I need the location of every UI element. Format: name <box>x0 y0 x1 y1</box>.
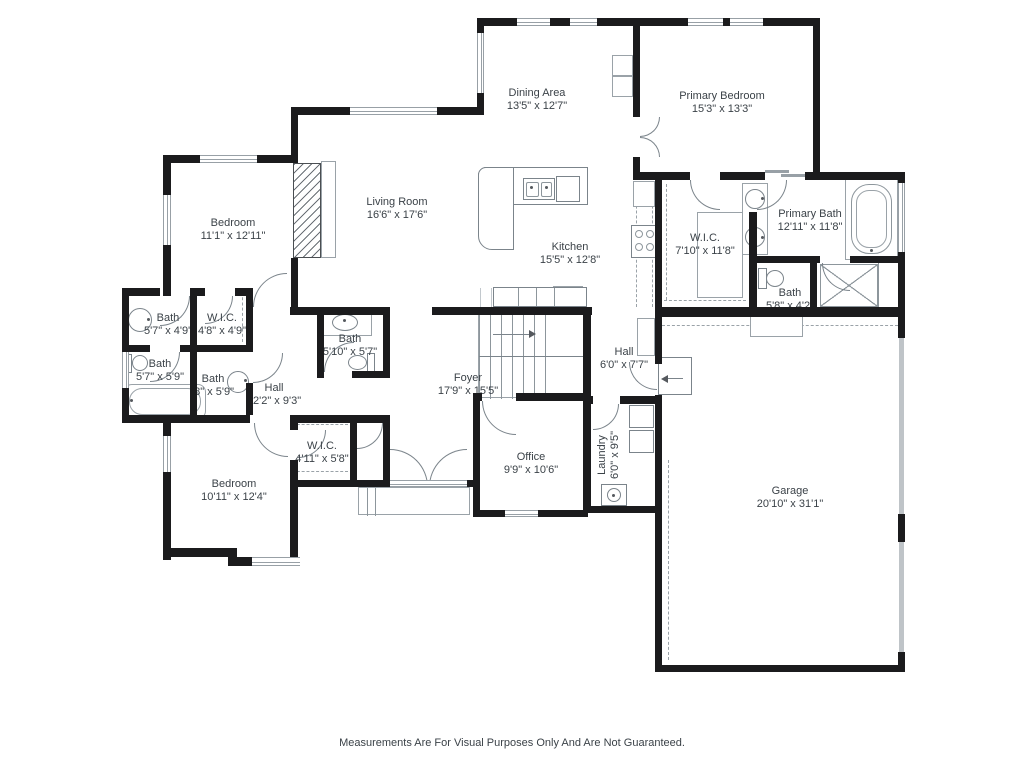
kitchen-island <box>478 167 514 250</box>
stair-direction-arrow <box>529 330 536 338</box>
room-name: Kitchen <box>540 241 600 254</box>
wall-segment <box>291 107 298 163</box>
room-label-garage: Garage 20'10" x 31'1" <box>757 485 823 511</box>
room-name: Laundry <box>596 431 609 479</box>
room-name: W.I.C. <box>198 312 246 325</box>
faucet-dot <box>612 494 615 497</box>
room-label-laundry: Laundry 6'0" x 9'5" <box>596 431 622 479</box>
wall-segment <box>633 157 640 180</box>
garage-door-panel <box>899 542 904 652</box>
room-dims: 4'8" x 4'9" <box>198 325 246 338</box>
faucet-dot <box>343 319 346 322</box>
faucet-dot <box>761 236 764 239</box>
room-name: Office <box>504 451 558 464</box>
closet-shelf <box>664 300 746 301</box>
door-swing-arc <box>757 180 787 210</box>
wall-segment <box>749 212 757 317</box>
room-label-hall-2: Hall 6'0" x 7'7" <box>600 346 648 372</box>
porch <box>358 487 470 515</box>
counter-divider <box>554 288 555 306</box>
cooktop <box>556 176 580 202</box>
room-name: Hall <box>600 346 648 359</box>
garage-step <box>658 357 692 395</box>
room-name: Primary Bath <box>778 208 843 221</box>
room-dims: 16'6" x 17'6" <box>366 209 427 222</box>
room-label-living-room: Living Room 16'6" x 17'6" <box>366 196 427 222</box>
room-label-bedroom-upper: Bedroom 11'1" x 12'11" <box>201 217 266 243</box>
door-swing-arc <box>690 180 720 210</box>
room-name: Bedroom <box>201 478 267 491</box>
wall-segment <box>290 415 298 430</box>
window <box>350 107 437 115</box>
room-label-wic-1: W.I.C. 4'8" x 4'9" <box>198 312 246 338</box>
wall-segment <box>317 307 324 378</box>
wall-segment <box>850 256 905 263</box>
wall-segment <box>290 307 390 315</box>
sink-basin <box>526 182 539 197</box>
room-dims: 13'5" x 12'7" <box>507 100 567 113</box>
wall-segment <box>655 179 662 307</box>
wall-segment <box>655 307 905 317</box>
door-swing-arc <box>254 423 288 457</box>
room-label-bath-3: Bath '8" x 5'9" <box>192 373 234 399</box>
kitchen-sink <box>523 178 555 200</box>
door-swing-arc <box>253 273 287 307</box>
faucet-dot <box>761 197 764 200</box>
wall-segment <box>583 310 591 513</box>
wall-segment <box>383 307 390 378</box>
wall-segment <box>246 288 253 345</box>
window <box>570 18 597 26</box>
door-swing-arc <box>640 117 660 137</box>
fireplace <box>293 163 321 258</box>
room-dims: 5'10" x 5'7" <box>323 346 377 359</box>
door-swing-arc <box>640 137 660 157</box>
linen-divider <box>878 263 879 307</box>
room-dims: 7'10" x 11'8" <box>675 245 735 258</box>
faucet-dot <box>530 186 533 189</box>
wall-segment <box>749 256 820 263</box>
wall-segment <box>655 395 662 672</box>
room-dims: 12'2" x 9'3" <box>247 395 301 408</box>
wall-segment <box>898 317 905 338</box>
tub-faucet <box>130 399 133 402</box>
room-dims: 4'11" x 5'8" <box>295 453 348 466</box>
wall-segment <box>813 18 820 180</box>
room-label-wic-2: W.I.C. 4'11" x 5'8" <box>295 440 348 466</box>
wall-segment <box>291 258 298 315</box>
wall-segment <box>246 383 253 415</box>
wall-segment <box>122 415 250 423</box>
window <box>122 352 129 388</box>
sink-basin <box>541 182 552 197</box>
room-dims: '8" x 5'9" <box>192 386 234 399</box>
burner <box>646 243 654 251</box>
vanity-sink <box>332 314 358 331</box>
room-name: Bath <box>192 373 234 386</box>
room-label-bath-1: Bath 5'7" x 4'9" <box>144 312 192 338</box>
room-name: Bath <box>136 358 184 371</box>
porch-step-line <box>375 488 376 516</box>
room-dims: 10'11" x 12'4" <box>201 491 267 504</box>
wall-segment <box>290 415 390 423</box>
wall-segment <box>898 652 905 672</box>
wall-segment <box>655 665 905 672</box>
room-label-bath-2: Bath 5'7" x 5'9" <box>136 358 184 384</box>
room-name: Foyer <box>438 372 498 385</box>
window <box>505 510 538 517</box>
wall-segment <box>633 18 640 117</box>
wall-segment <box>655 317 662 364</box>
room-name: Bath <box>144 312 192 325</box>
garage-door-panel <box>899 338 904 514</box>
room-dims: 9'9" x 10'6" <box>504 464 558 477</box>
dining-builtin <box>612 55 633 76</box>
porch-step-line <box>367 488 368 516</box>
room-label-primary-bedroom: Primary Bedroom 15'3" x 13'3" <box>679 90 765 116</box>
step-arrow-line <box>667 378 683 379</box>
room-dims: 6'0" x 7'7" <box>600 359 648 372</box>
room-label-bath-4: Bath 5'10" x 5'7" <box>323 333 377 359</box>
window <box>898 183 905 252</box>
room-dims: 15'5" x 12'8" <box>540 254 600 267</box>
room-name: Bedroom <box>201 217 266 230</box>
room-label-kitchen: Kitchen 15'5" x 12'8" <box>540 241 600 267</box>
washer <box>629 405 654 428</box>
room-dims: 11'1" x 12'11" <box>201 230 266 243</box>
room-label-office: Office 9'9" x 10'6" <box>504 451 558 477</box>
room-name: W.I.C. <box>295 440 348 453</box>
door-swing-arc <box>482 401 516 435</box>
room-name: Garage <box>757 485 823 498</box>
wall-segment <box>163 548 237 557</box>
garage-dashed-line <box>668 460 669 660</box>
door-swing-arc <box>253 353 283 383</box>
storage-shelf <box>750 315 803 337</box>
window <box>688 18 723 26</box>
wall-segment <box>516 393 591 401</box>
toilet-bowl <box>766 270 784 287</box>
wall-segment <box>290 480 358 487</box>
wall-segment <box>383 415 390 487</box>
room-label-primary-wic: W.I.C. 7'10" x 11'8" <box>675 232 735 258</box>
wall-segment <box>477 18 640 26</box>
window <box>200 155 257 163</box>
sliding-door <box>781 174 805 177</box>
dining-builtin <box>612 76 633 97</box>
room-name: Primary Bedroom <box>679 90 765 103</box>
window <box>477 33 484 93</box>
stair-midline <box>479 356 585 357</box>
sliding-door <box>765 170 789 173</box>
closet-rod <box>666 184 667 300</box>
wall-segment <box>350 415 357 487</box>
wall-segment <box>898 514 905 542</box>
window <box>252 557 300 566</box>
window <box>163 195 171 245</box>
wall-segment <box>190 288 197 345</box>
wall-segment <box>190 352 197 415</box>
counter-divider <box>536 288 537 306</box>
wall-segment <box>180 345 253 352</box>
window <box>390 480 467 487</box>
floor-plan: Dining Area 13'5" x 12'7" Primary Bedroo… <box>0 0 1024 768</box>
dryer <box>629 430 654 453</box>
wall-segment <box>583 506 662 513</box>
range-burners <box>631 225 657 258</box>
room-dims: 6'0" x 9'5" <box>609 431 622 479</box>
window <box>517 18 550 26</box>
room-dims: 12'11" x 11'8" <box>778 221 843 234</box>
wall-segment <box>720 172 765 180</box>
room-label-foyer: Foyer 17'9" x 15'5" <box>438 372 498 398</box>
kitchen-counter <box>493 287 587 307</box>
bathtub-basin <box>856 190 887 248</box>
room-dims: 15'3" x 13'3" <box>679 103 765 116</box>
room-name: W.I.C. <box>675 232 735 245</box>
room-dims: 20'10" x 31'1" <box>757 498 823 511</box>
burner <box>646 230 654 238</box>
burner <box>635 230 643 238</box>
wall-segment <box>810 263 817 307</box>
room-name: Bath <box>766 287 814 300</box>
window <box>163 436 171 472</box>
room-label-dining-area: Dining Area 13'5" x 12'7" <box>507 87 567 113</box>
burner <box>635 243 643 251</box>
window <box>730 18 763 26</box>
door-swing-arc <box>593 404 619 430</box>
step-arrow <box>661 375 668 383</box>
closet-shelf <box>292 424 348 425</box>
room-label-primary-bath: Primary Bath 12'11" x 11'8" <box>778 208 843 234</box>
closet-shelf <box>292 471 348 472</box>
stair-direction-line <box>493 334 529 335</box>
tub-drain <box>870 249 873 252</box>
disclaimer-text: Measurements Are For Visual Purposes Onl… <box>339 737 685 749</box>
wall-segment <box>633 18 820 26</box>
wall-segment <box>473 393 480 517</box>
counter-divider <box>518 288 519 306</box>
faucet-dot <box>545 186 548 189</box>
refrigerator <box>633 181 655 207</box>
room-label-bedroom-lower: Bedroom 10'11" x 12'4" <box>201 478 267 504</box>
fireplace-mantel <box>321 161 336 258</box>
wall-segment <box>432 307 592 315</box>
room-name: Dining Area <box>507 87 567 100</box>
room-name: Living Room <box>366 196 427 209</box>
room-label-hall-1: Hall 12'2" x 9'3" <box>247 382 301 408</box>
room-name: Hall <box>247 382 301 395</box>
wall-segment <box>290 460 298 565</box>
door-swing-arc <box>357 423 383 449</box>
wall-segment <box>805 172 905 180</box>
room-name: Bath <box>323 333 377 346</box>
room-dims: 5'7" x 4'9" <box>144 325 192 338</box>
room-dims: 5'7" x 5'9" <box>136 371 184 384</box>
room-dims: 17'9" x 15'5" <box>438 385 498 398</box>
